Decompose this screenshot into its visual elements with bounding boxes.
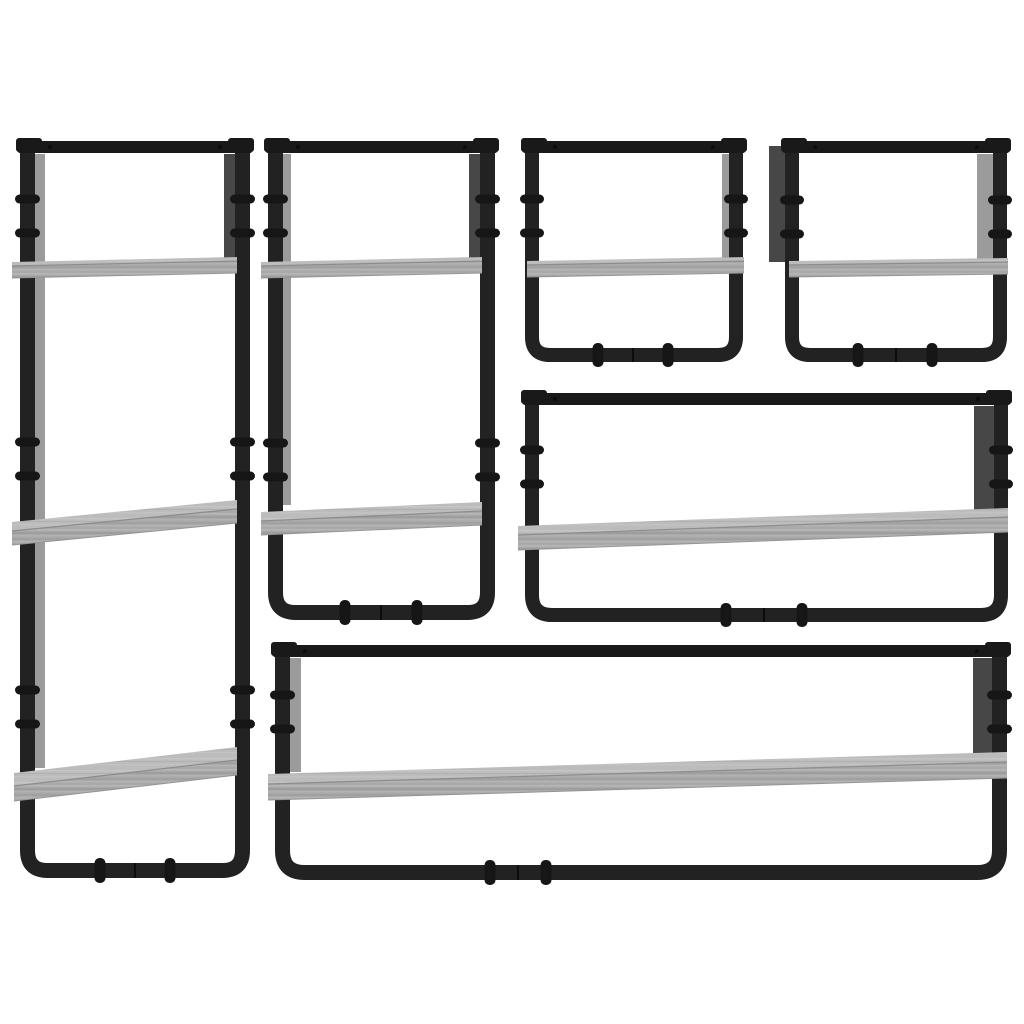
bolt (724, 195, 748, 204)
corner-cap-left (781, 138, 807, 152)
frame (276, 143, 488, 613)
clip (340, 600, 351, 625)
wall-shelf-set-illustration: 6 piece wall shelf set with bars, black … (0, 0, 1024, 1024)
clip (95, 858, 106, 883)
top-rail (18, 141, 252, 153)
corner-cap-right (721, 138, 747, 152)
bolt (230, 195, 255, 204)
bolt (15, 229, 40, 238)
bolt (230, 229, 255, 238)
rail-seam (517, 865, 519, 880)
clip (927, 343, 938, 367)
bolt (15, 720, 40, 729)
bolt (475, 439, 500, 448)
top-rail (273, 645, 1009, 657)
bolt (263, 439, 288, 448)
corner-cap-left (271, 642, 297, 656)
bolt (263, 195, 288, 204)
bolt (270, 691, 295, 700)
bolt (989, 480, 1013, 489)
rivet (975, 649, 979, 653)
unit-5-wide-shelf (518, 390, 1013, 627)
rail-seam (380, 605, 382, 620)
bolt (263, 229, 288, 238)
bolt (15, 195, 40, 204)
rivet (553, 397, 557, 401)
rail-seam (632, 348, 634, 362)
unit-6-extra-wide-shelf (268, 642, 1012, 885)
rivet (553, 145, 557, 149)
bolt (475, 229, 500, 238)
clip (721, 603, 732, 627)
top-rail (523, 393, 1010, 405)
rivet (48, 145, 52, 149)
rivet (976, 397, 980, 401)
bolt (780, 196, 804, 205)
bolt (230, 720, 255, 729)
side-panel-light (34, 154, 45, 768)
unit-2-two-tier-shelf (261, 138, 500, 625)
rivet (463, 145, 467, 149)
corner-cap-left (521, 390, 547, 404)
side-panel-light (977, 154, 993, 259)
bolt (475, 473, 500, 482)
bolt (230, 686, 255, 695)
clip (541, 860, 552, 885)
side-panel-dark (224, 154, 235, 259)
product-image-canvas: 6 piece wall shelf set with bars, black … (0, 0, 1024, 1024)
side-panel-dark (469, 154, 480, 259)
frame (792, 143, 1000, 355)
unit-3-small-shelf-left (520, 138, 748, 367)
clip (663, 343, 674, 367)
rivet (711, 145, 715, 149)
corner-cap-right (986, 390, 1012, 404)
clip (853, 343, 864, 367)
bolt (15, 438, 40, 447)
side-panel-dark (973, 658, 994, 756)
bolt (520, 195, 544, 204)
rivet (813, 145, 817, 149)
corner-cap-right (473, 138, 499, 152)
unit-1-tall-3-tier-shelf (12, 138, 255, 883)
rail-seam (134, 863, 136, 878)
clip (165, 858, 176, 883)
bolt (987, 725, 1012, 734)
corner-cap-left (264, 138, 290, 152)
clip (485, 860, 496, 885)
bolt (270, 725, 295, 734)
side-panel-light (289, 658, 301, 772)
clip (797, 603, 808, 627)
rivet (218, 145, 222, 149)
corner-cap-right (985, 138, 1011, 152)
frame (532, 143, 736, 355)
corner-cap-right (985, 642, 1011, 656)
bolt (520, 446, 544, 455)
side-panel-dark (974, 406, 995, 519)
bolt (988, 196, 1012, 205)
bolt (230, 472, 255, 481)
side-panel-light (282, 154, 291, 505)
frame (532, 395, 1001, 615)
clip (593, 343, 604, 367)
rail-seam (895, 348, 897, 362)
clip (412, 600, 423, 625)
bolt (987, 691, 1012, 700)
corner-cap-left (16, 138, 42, 152)
bolt (520, 229, 544, 238)
side-panel-light (722, 154, 729, 258)
bolt (475, 195, 500, 204)
bolt (263, 473, 288, 482)
bolt (989, 446, 1013, 455)
bolt (780, 230, 804, 239)
rivet (296, 145, 300, 149)
top-rail (266, 141, 497, 153)
rivet (303, 649, 307, 653)
rail-seam (763, 608, 765, 622)
bolt (230, 438, 255, 447)
bolt (15, 472, 40, 481)
corner-cap-right (228, 138, 254, 152)
bolt (724, 229, 748, 238)
bolt (988, 230, 1012, 239)
bolt (15, 686, 40, 695)
unit-4-small-shelf-right (769, 138, 1012, 367)
rivet (975, 145, 979, 149)
corner-cap-left (521, 138, 547, 152)
bolt (520, 480, 544, 489)
